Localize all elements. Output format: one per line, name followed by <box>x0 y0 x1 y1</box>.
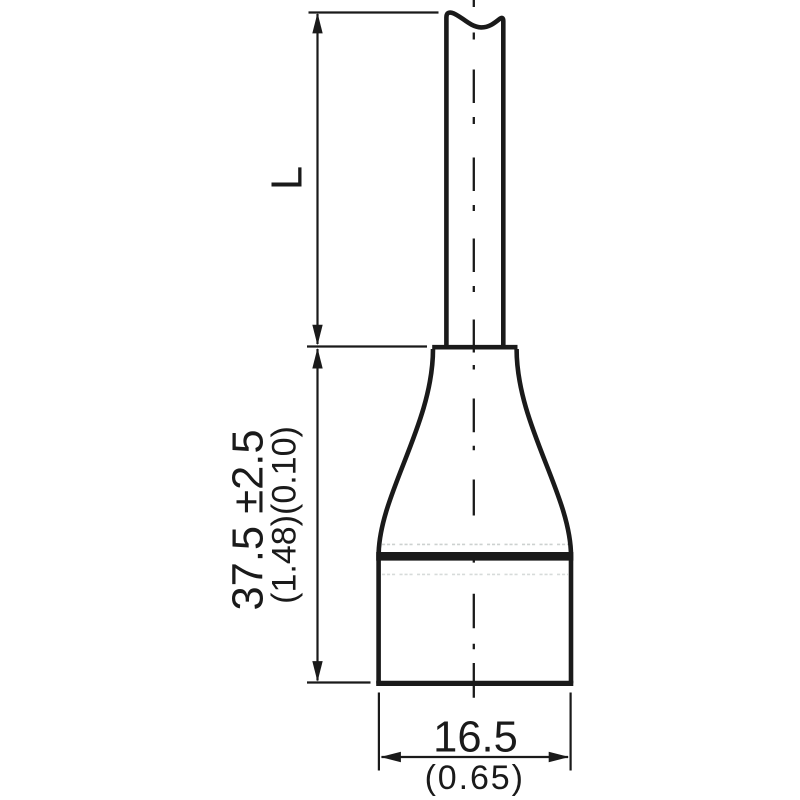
svg-text:(0.65): (0.65) <box>425 759 525 797</box>
svg-text:L: L <box>264 166 312 190</box>
svg-text:16.5: 16.5 <box>433 714 518 762</box>
svg-text:(1.48)(0.10): (1.48)(0.10) <box>266 426 304 604</box>
